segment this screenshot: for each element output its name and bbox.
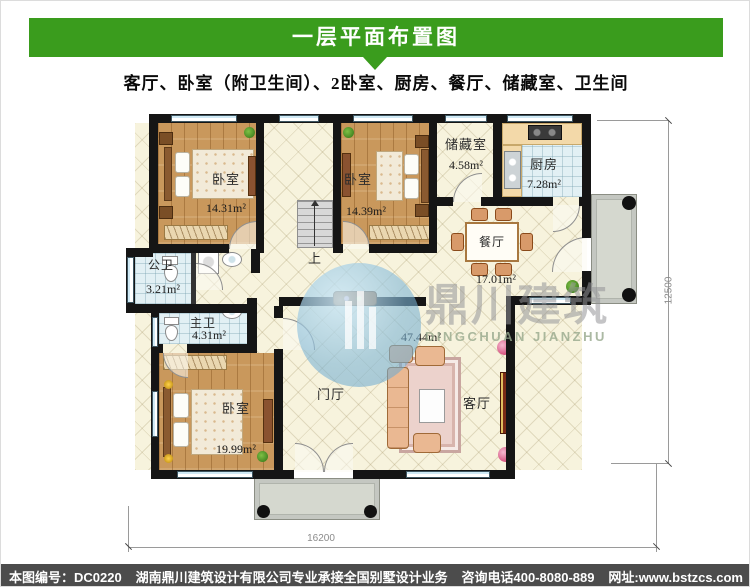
foyer-label: 门厅 [306,384,356,403]
bedroom-nw-label: 卧室 [196,169,256,188]
window [406,471,490,478]
phone-number: 咨询电话400-8080-889 [462,567,595,586]
bed-headboard [163,387,171,457]
wall-kitchen-bottom [481,197,553,206]
bed-pillow [173,393,189,418]
entry-porch [254,478,380,520]
wardrobe [369,225,431,240]
dimension-extension [611,463,669,464]
dining-label: 餐厅 [465,233,519,250]
dining-chair [451,233,464,251]
dining-chair [520,233,533,251]
dimension-extension [597,120,669,121]
terrace-column [622,288,636,302]
bed-headboard [421,149,429,203]
loveseat [415,346,445,366]
bedroom-nw-area: 14.31m² [186,201,266,216]
porch-column [364,505,377,518]
console-table [333,291,377,306]
wall-storage-bottom [437,197,453,206]
window [152,317,158,347]
wall-publicbath-partition [191,253,196,304]
bedside-lamp [164,454,173,463]
stair-arrow-head [311,200,319,206]
dimension-line-bottom [128,547,657,548]
wall-bedroom-ne-right [429,114,437,253]
wall-dining-right-upper [582,114,591,238]
plant-icon [244,127,255,138]
website-url: 网址:www.bstzcs.com [608,567,743,586]
dimension-extension [656,463,657,552]
living-label: 客厅 [451,393,503,412]
dimension-height-label: 12500 [664,261,675,321]
nightstand [159,132,173,145]
window [507,115,573,122]
window [171,115,237,122]
window [353,115,413,122]
bedroom-ne-area: 14.39m² [326,204,406,219]
wall-foyer-left-top [274,306,283,318]
plant-icon [343,127,354,138]
wall-bedroom-ne-bottom [369,244,437,253]
basin-icon [222,252,242,267]
wall-kitchen-bottom [579,197,591,206]
window [177,471,253,478]
wall-nook-divider [251,249,260,273]
master-bath-area: 4.31m² [181,328,237,343]
page-title: 一层平面布置图 [29,18,723,57]
coffee-table [419,389,445,423]
public-bath-label: 公卫 [139,256,183,273]
toilet-icon [164,317,179,325]
floor-plan-page: 一层平面布置图 客厅、卧室（附卫生间）、2卧室、厨房、餐厅、储藏室、卫生间 [0,0,750,587]
public-bath-area: 3.21m² [135,282,191,297]
nightstand [159,206,173,219]
plant-icon [566,280,579,293]
window [445,115,487,122]
bed-headboard [164,147,172,201]
bedroom-sw-label: 卧室 [206,398,266,417]
stove-icon [528,125,562,140]
bed-pillow [175,152,190,173]
wall-publicbath-bottom [126,304,256,313]
window [279,115,319,122]
sheet-number: 本图编号：DC0220 [9,567,122,586]
wall-living-right [506,299,515,479]
terrace-column [622,196,636,210]
dining-chair [495,208,512,221]
living-area: 47.44m² [381,330,461,345]
dimension-width-label: 16200 [256,533,386,544]
wardrobe [164,225,228,240]
bed-pillow [404,154,419,175]
bed-pillow [404,178,419,199]
nightstand [415,204,429,217]
armchair [413,433,441,453]
dining-area: 17.01m² [461,272,531,287]
window [152,391,158,437]
bed-pillow [173,422,189,447]
stair-direction-arrow [314,204,315,246]
kitchen-label: 厨房 [514,154,574,173]
nightstand [415,135,429,148]
stair-up-label: 上 [306,248,324,267]
room-summary-subtitle: 客厅、卧室（附卫生间）、2卧室、厨房、餐厅、储藏室、卫生间 [1,69,750,94]
window [529,297,571,304]
wall-bedroom-ne-bottom [333,244,343,253]
kitchen-area: 7.28m² [514,177,574,192]
armchair [389,345,413,363]
wall-exterior-left-upper [149,114,158,253]
wall-dining-right-lower [582,271,591,305]
storage-area: 4.58m² [437,158,495,173]
bedside-lamp [164,380,173,389]
wall-bedroom-nw-right [256,114,264,253]
wall-masterbath-bottom [187,344,256,353]
footer-bar: 本图编号：DC0220 湖南鼎川建筑设计有限公司专业承接全国别墅设计业务 咨询电… [1,564,750,587]
bedroom-sw-area: 19.99m² [196,442,276,457]
window [127,257,134,303]
wall-bedroom-nw-bottom [149,244,229,253]
sofa [387,367,409,449]
company-name: 湖南鼎川建筑设计有限公司专业承接全国别墅设计业务 [136,567,448,586]
porch-column [257,505,270,518]
bed-pillow [175,176,190,197]
storage-label: 储藏室 [437,134,495,153]
dining-chair [471,208,488,221]
bedroom-ne-label: 卧室 [328,169,388,188]
